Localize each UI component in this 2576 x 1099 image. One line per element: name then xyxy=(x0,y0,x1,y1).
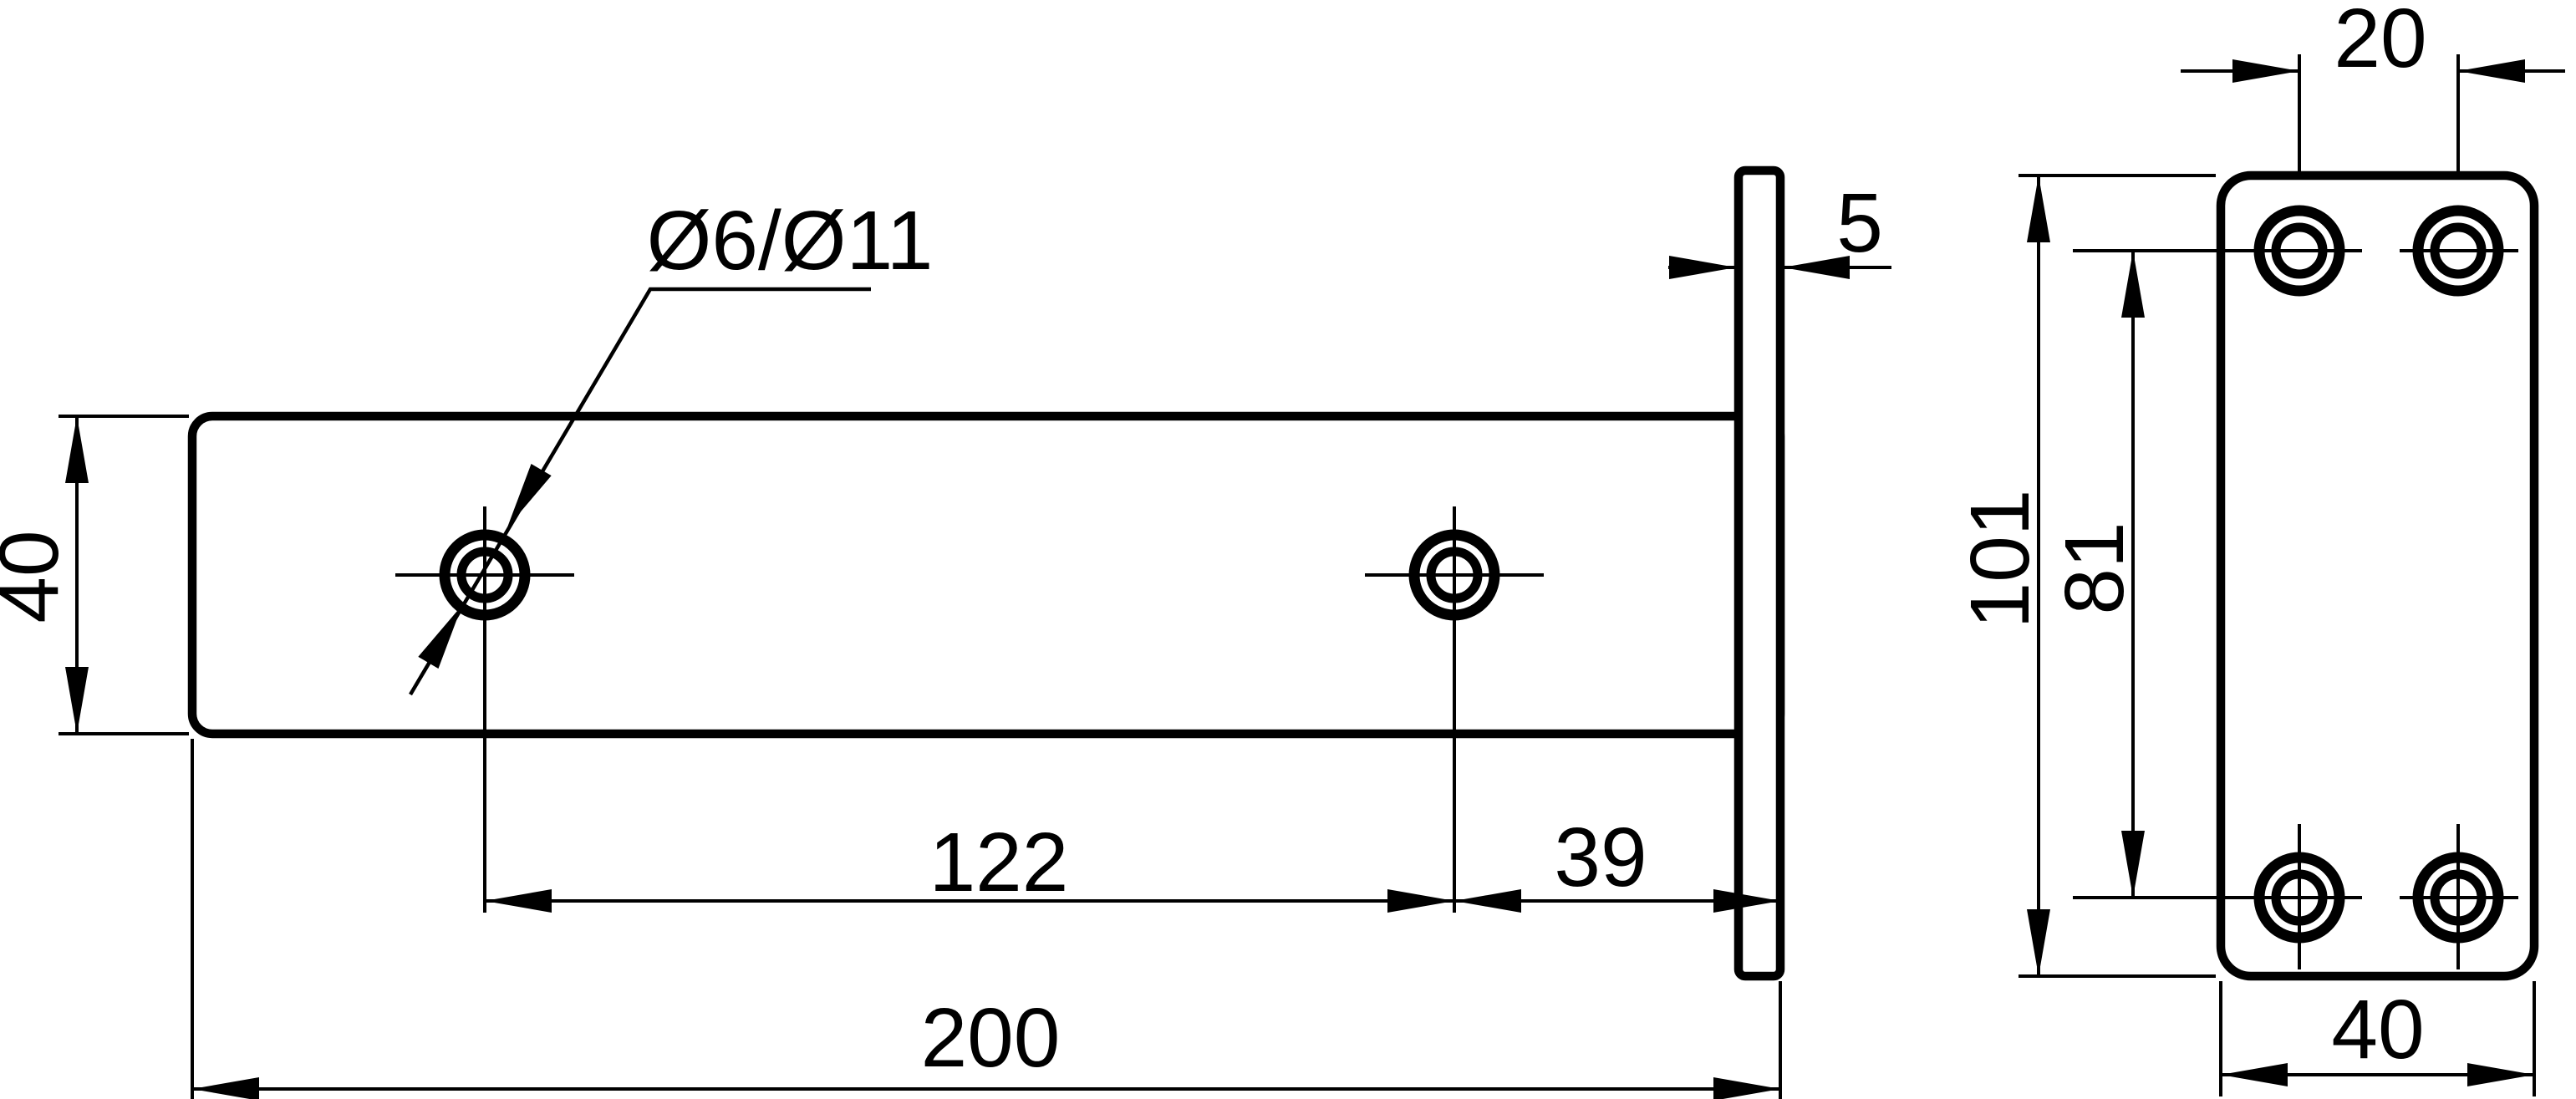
dim-label-front-hole-spacing-v: 81 xyxy=(2048,522,2141,614)
dim-label-hole-note: Ø6/Ø11 xyxy=(647,194,934,287)
dim-label-front-hole-spacing-h: 20 xyxy=(2334,0,2426,85)
dim-label-front-width: 40 xyxy=(2331,983,2424,1076)
drawing-canvas: Ø6/Ø11 40 5 122 39 200 xyxy=(0,0,2576,1099)
front-view: 20 101 81 40 xyxy=(1953,0,2565,1096)
bracket-technical-drawing: Ø6/Ø11 40 5 122 39 200 xyxy=(0,0,2576,1099)
dim-side-height xyxy=(59,416,189,734)
dim-label-total-length: 200 xyxy=(921,991,1061,1085)
dim-label-hole-to-end: 39 xyxy=(1554,811,1647,904)
dim-label-hole-spacing: 122 xyxy=(929,816,1069,909)
dim-label-front-height: 101 xyxy=(1953,490,2047,629)
side-view: Ø6/Ø11 40 5 122 39 200 xyxy=(0,170,1891,1099)
dim-label-side-height: 40 xyxy=(0,530,76,623)
mounting-plate-front xyxy=(2221,176,2534,976)
mounting-plate-edge xyxy=(1739,170,1780,976)
dim-label-plate-thickness: 5 xyxy=(1836,176,1883,270)
